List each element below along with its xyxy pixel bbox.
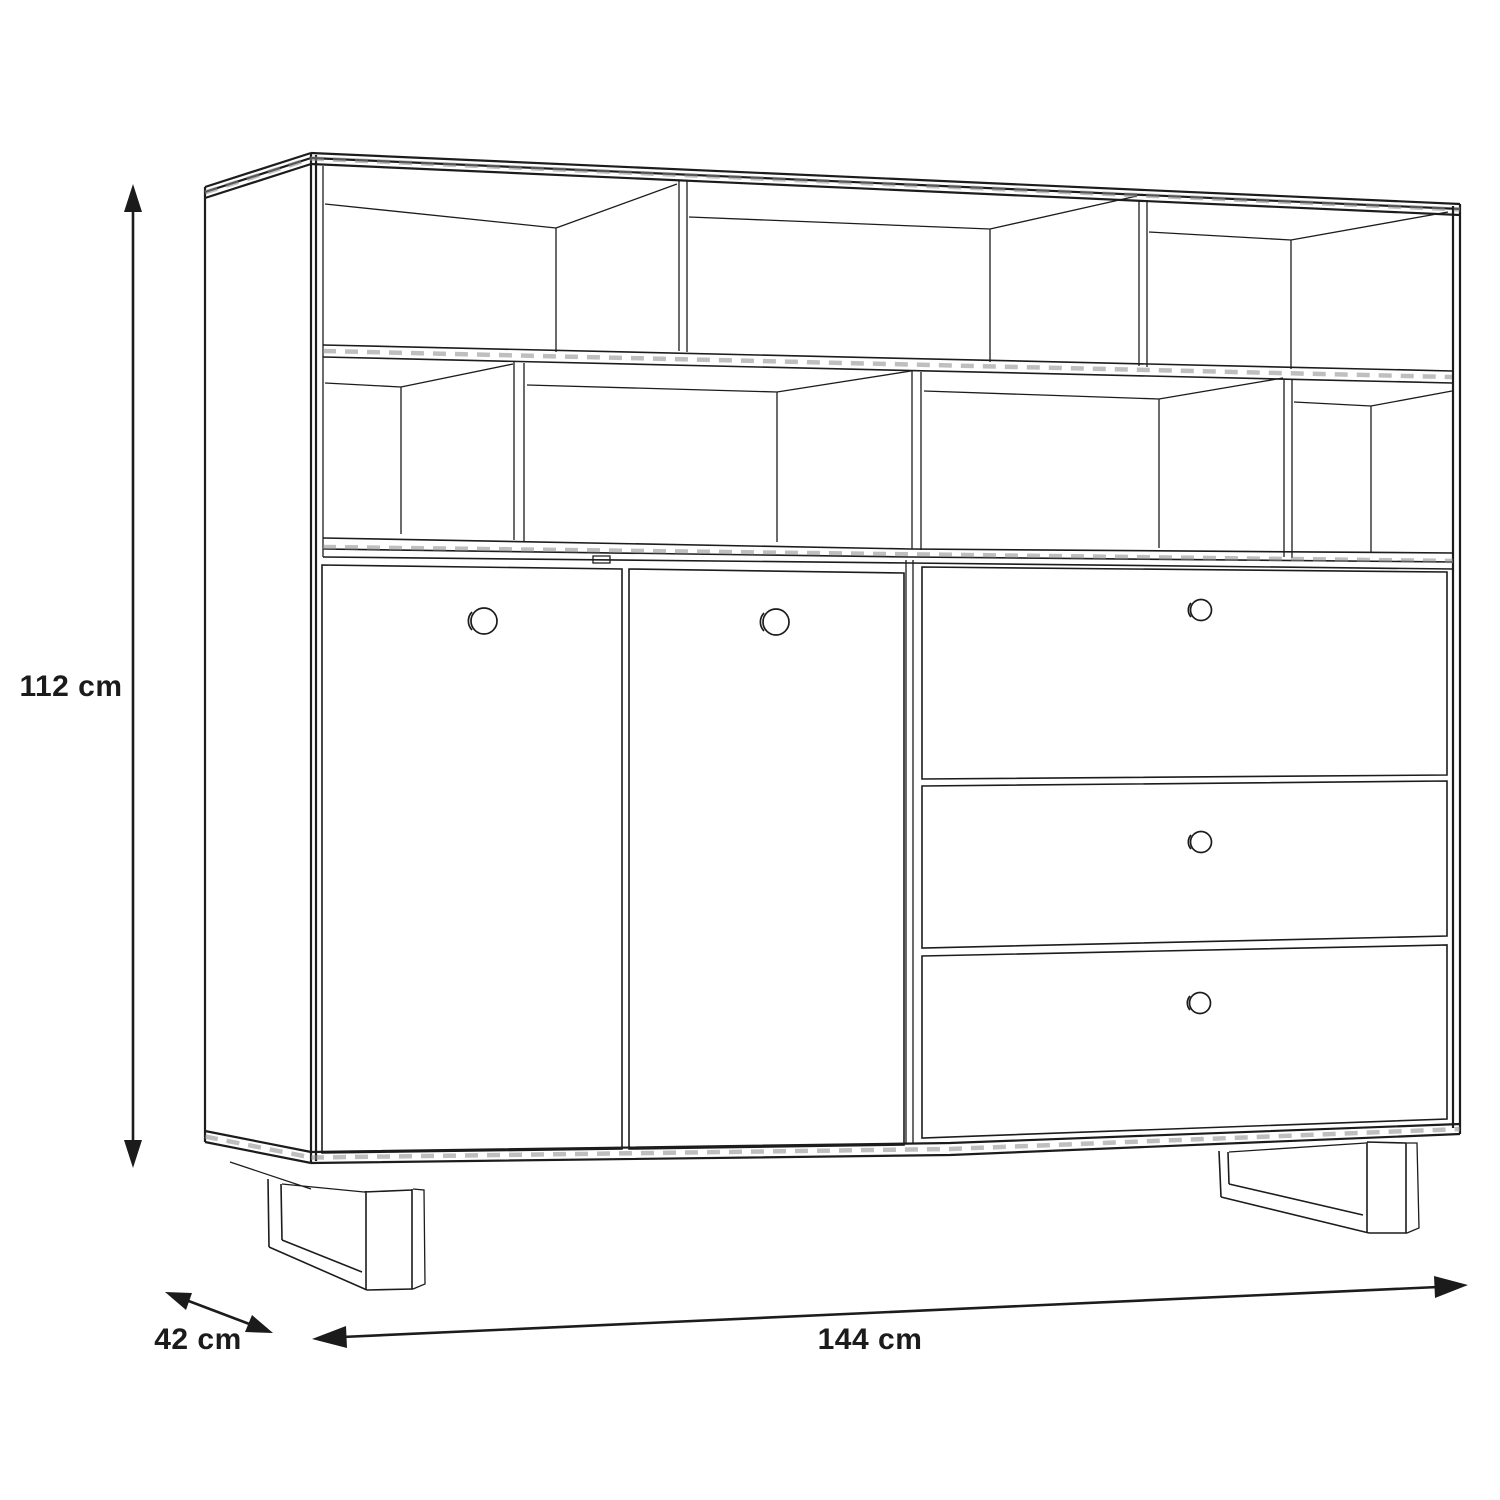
left-side-panel — [205, 153, 311, 1163]
shelf-band-1 — [323, 345, 1452, 383]
depth-dimension-label: 42 cm — [154, 1323, 242, 1356]
row2-compartment-3-interior — [924, 378, 1283, 548]
leg-right-bottom-bar — [1221, 1184, 1369, 1233]
drawer-1 — [922, 567, 1447, 779]
row2-divider-1 — [514, 362, 524, 541]
row1-compartment-1-interior — [325, 184, 677, 352]
arrow-up-left-icon — [165, 1292, 192, 1310]
leg-right-front-post — [1367, 1142, 1407, 1233]
door-left — [322, 565, 622, 1153]
row2-compartment-1-interior — [325, 364, 513, 534]
knobs — [468, 600, 1211, 1014]
door-left-knob-icon — [468, 608, 497, 634]
leg-right-back-post — [1219, 1151, 1229, 1197]
drawer-1-knob-icon — [1188, 600, 1211, 621]
drawer-3 — [922, 945, 1447, 1138]
door-right — [629, 569, 904, 1149]
leg-right — [1219, 1142, 1419, 1233]
leg-left — [230, 1162, 425, 1290]
cabinet-body — [205, 153, 1460, 1163]
door-drawer-divider — [906, 560, 913, 1144]
dimension-width: 144 cm — [312, 1276, 1468, 1356]
dimension-depth: 42 cm — [154, 1292, 273, 1356]
arrow-left-icon — [312, 1326, 347, 1348]
leg-left-back-post — [268, 1179, 282, 1247]
arrow-down-icon — [124, 1140, 142, 1168]
width-dimension-label: 144 cm — [818, 1323, 923, 1356]
furniture-dimension-diagram: 112 cm 42 cm 144 cm — [0, 0, 1500, 1500]
row1-divider-2 — [1139, 200, 1147, 367]
depth-dimension-line — [186, 1300, 252, 1325]
right-side-edge — [1453, 204, 1460, 1134]
row1-compartment-2-interior — [689, 196, 1137, 362]
band-texture — [205, 159, 1460, 1158]
drawer-2-knob-icon — [1188, 832, 1211, 853]
row2-compartment-4-interior — [1294, 391, 1452, 553]
row2-compartment-2-interior — [527, 371, 911, 542]
arrow-down-right-icon — [245, 1315, 273, 1333]
open-shelf-row-middle — [325, 362, 1452, 558]
doors-section — [322, 560, 913, 1153]
leg-left-bottom-bar — [269, 1240, 367, 1290]
leg-left-under-cabinet-edge — [230, 1162, 364, 1192]
dimension-height: 112 cm — [19, 184, 142, 1168]
leg-left-post-side — [413, 1189, 425, 1289]
row2-divider-3 — [1284, 379, 1292, 558]
row1-divider-1 — [679, 181, 687, 352]
leg-right-under-cabinet-edge — [1229, 1143, 1366, 1152]
arrow-up-icon — [124, 184, 142, 212]
drawer-2 — [922, 781, 1447, 948]
row2-divider-2 — [912, 371, 921, 550]
cabinet-line-drawing: 112 cm 42 cm 144 cm — [0, 0, 1500, 1500]
row1-compartment-3-interior — [1149, 212, 1448, 369]
leg-left-front-post — [364, 1189, 413, 1290]
open-shelf-row-top — [325, 181, 1448, 369]
height-dimension-label: 112 cm — [19, 670, 122, 703]
front-left-corner — [311, 153, 316, 1163]
drawers-section — [922, 567, 1447, 1138]
drawer-3-knob-icon — [1187, 993, 1210, 1014]
bottom-panel — [311, 1124, 1460, 1163]
leg-right-post-side — [1406, 1143, 1419, 1233]
arrow-right-icon — [1434, 1276, 1468, 1298]
door-right-knob-icon — [760, 609, 789, 635]
